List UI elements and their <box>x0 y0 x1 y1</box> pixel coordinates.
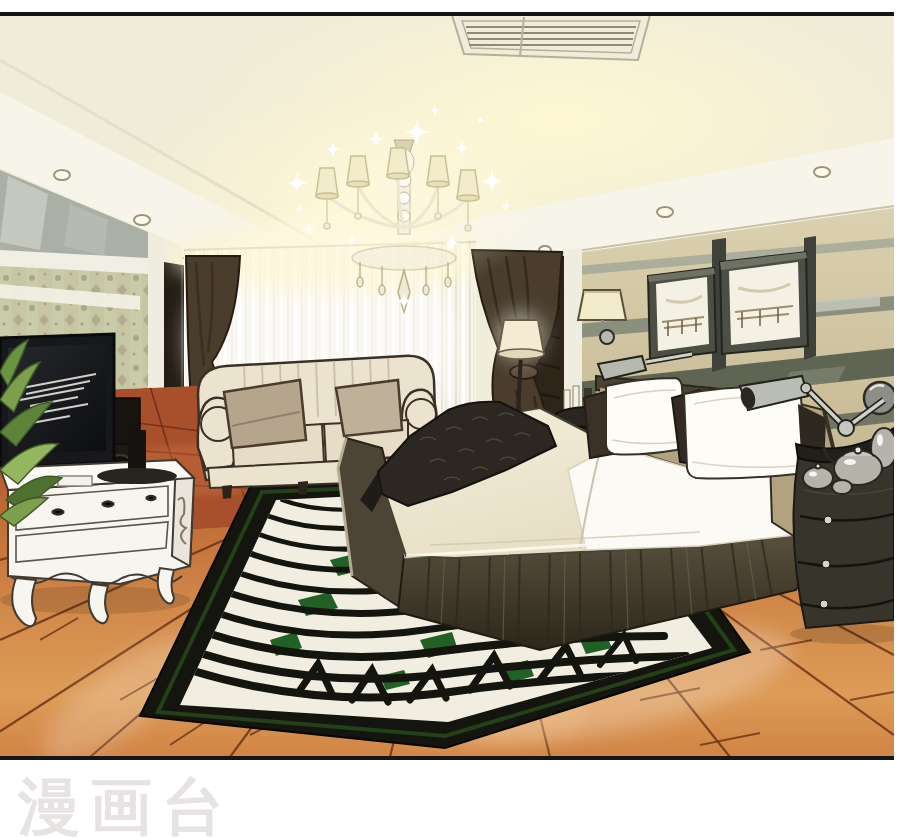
small-pot <box>803 467 833 489</box>
picture-frame-right <box>720 252 808 354</box>
panel-border-bottom <box>0 756 894 760</box>
tv-stand-neck <box>128 430 146 474</box>
bedroom-illustration: 漫画台 <box>0 0 900 838</box>
picture-frame-left <box>648 268 716 360</box>
ceiling-vent <box>452 15 650 60</box>
av-device <box>58 476 92 486</box>
crystal-bowl <box>352 246 456 270</box>
sugar-bowl <box>832 480 852 494</box>
sofa-pillow <box>336 380 402 436</box>
curtain-tieback <box>510 365 538 379</box>
panel-border-top <box>0 12 894 16</box>
drawer-knob <box>822 560 830 568</box>
drawer-knob <box>820 600 828 608</box>
tv-stand-base <box>97 468 177 484</box>
page-right-margin <box>894 0 900 838</box>
drawer-knob <box>824 516 832 524</box>
comic-panel <box>0 0 900 784</box>
watermark-text: 漫画台 <box>17 770 234 838</box>
lamp-joint <box>838 420 854 436</box>
